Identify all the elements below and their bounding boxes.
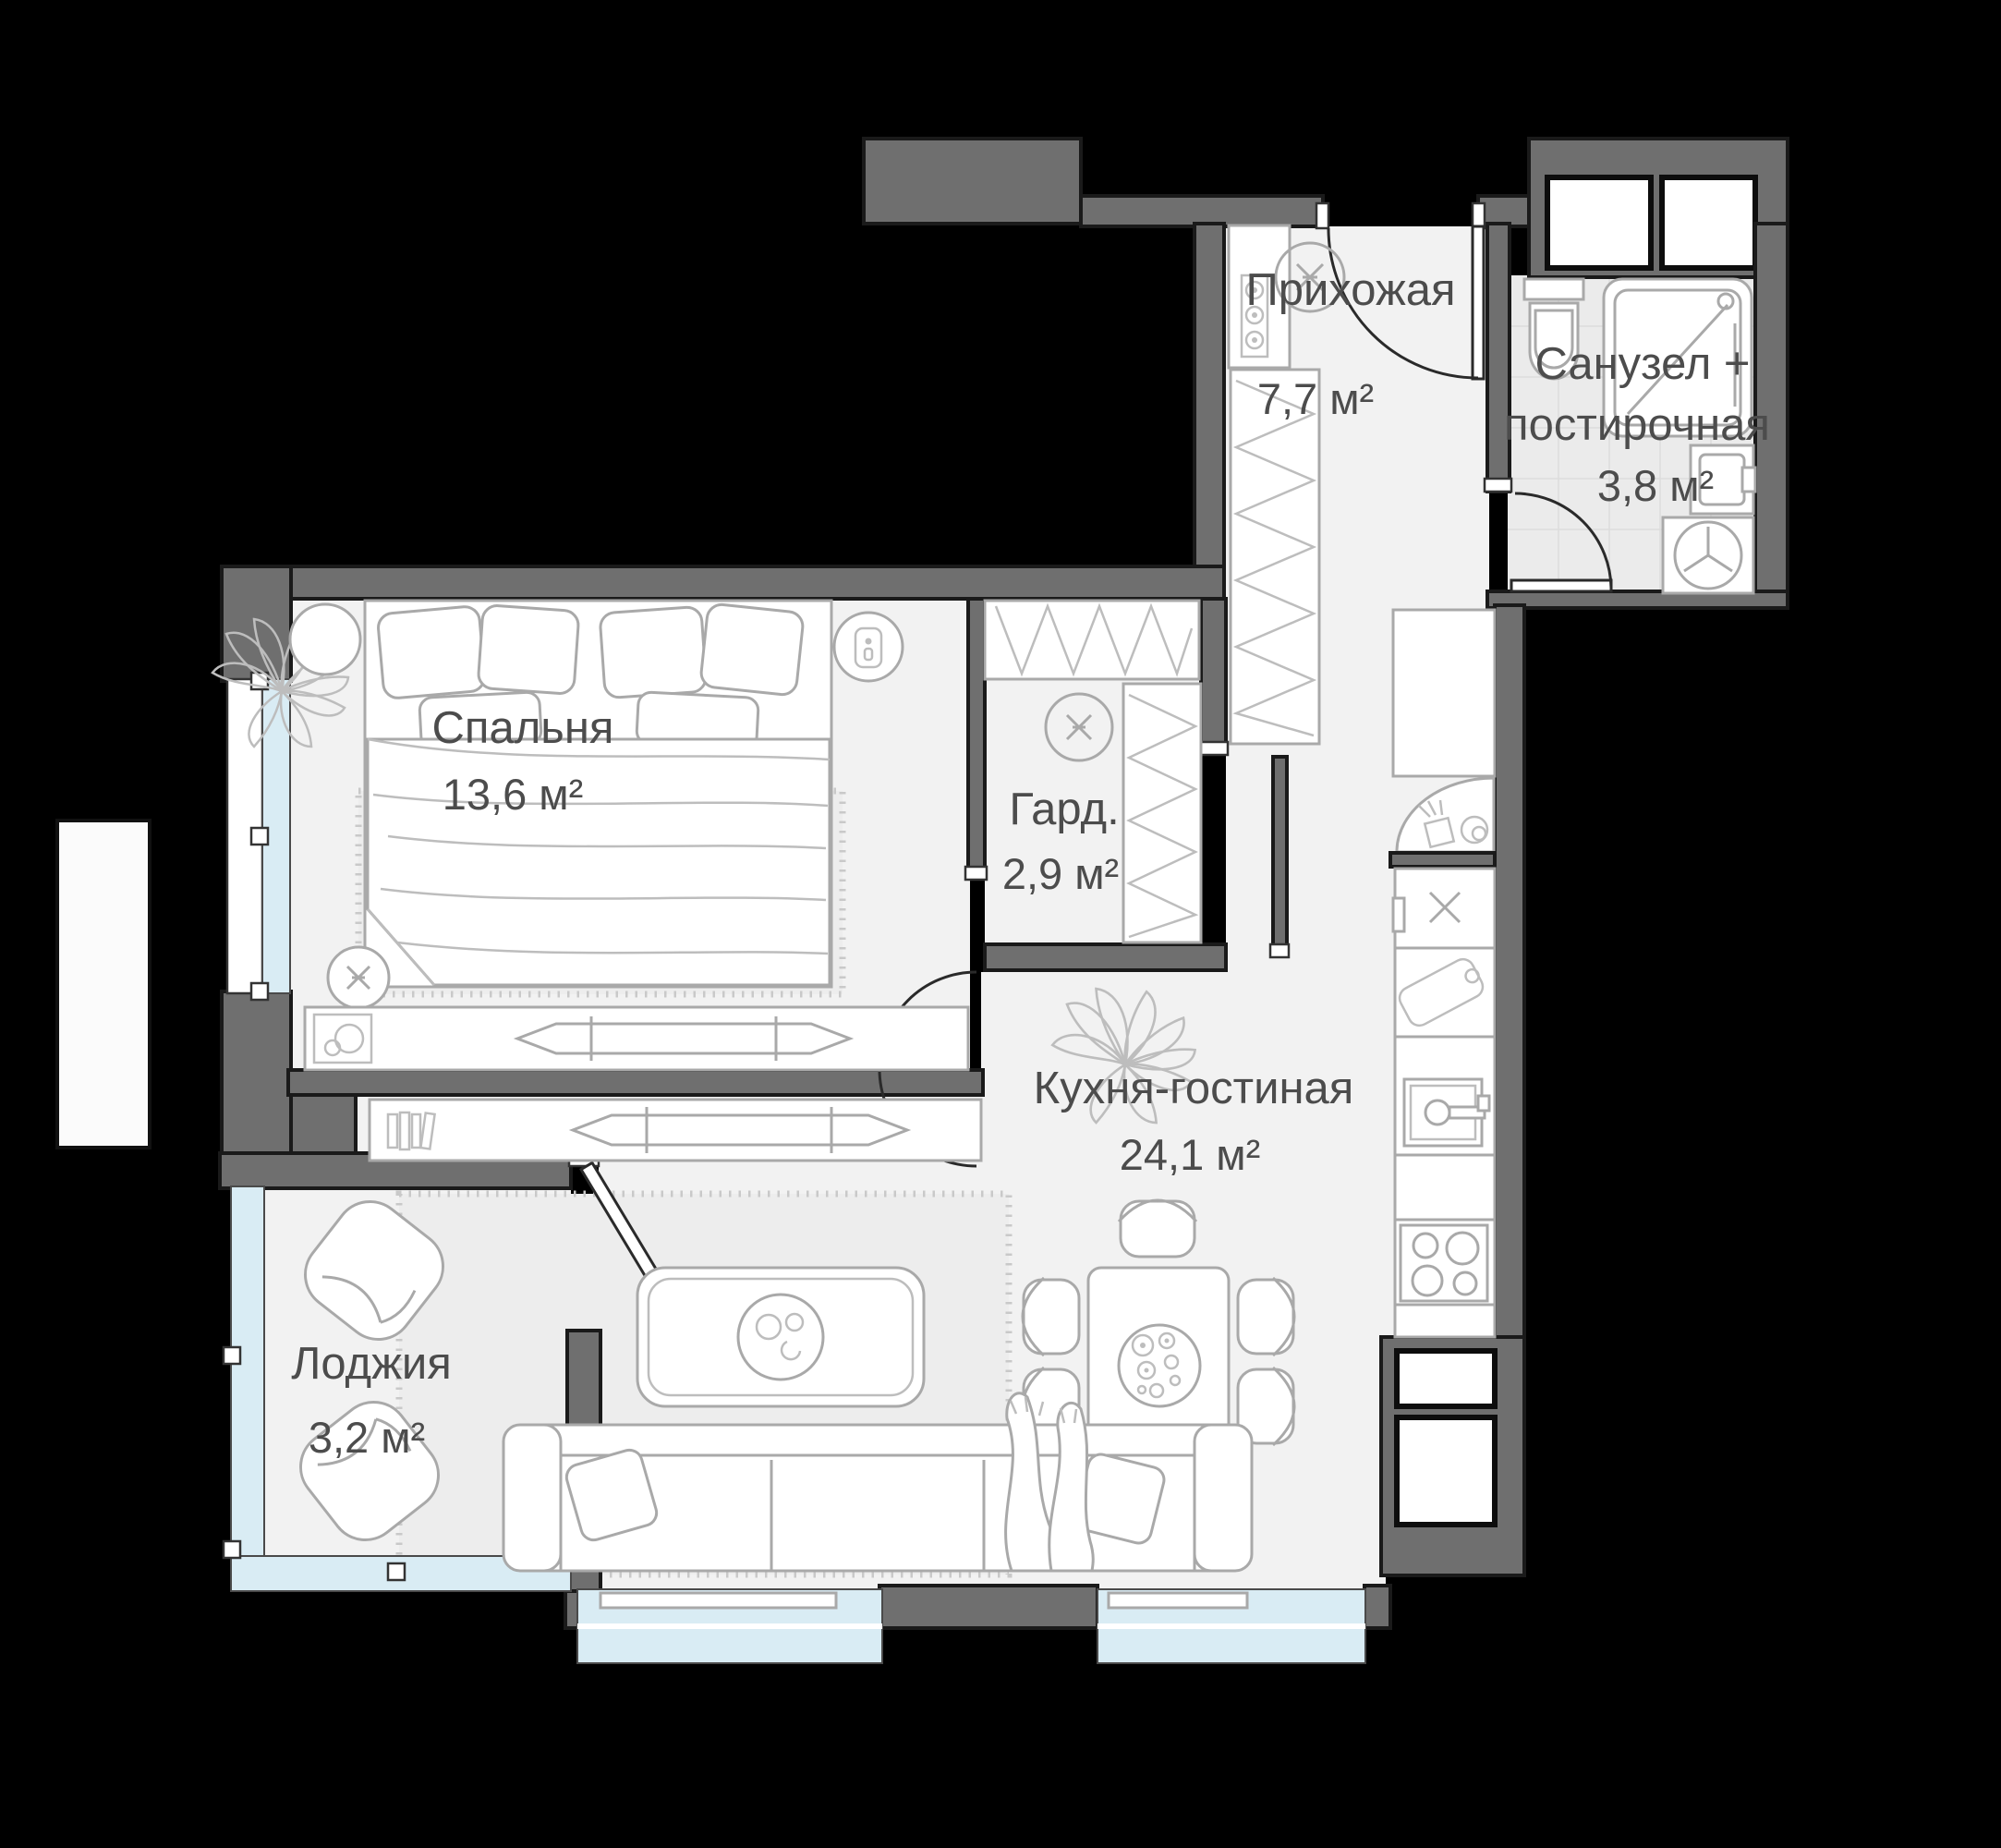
window-mullion [388, 1563, 405, 1580]
wardrobe-closet-top [985, 601, 1199, 679]
vent-shaft-1 [1547, 177, 1651, 268]
tv-icon [573, 1107, 907, 1153]
corridor-stub-wall [1273, 757, 1287, 946]
loggia-label: Лоджия [291, 1339, 452, 1389]
chair [1119, 1200, 1196, 1257]
vanity-stool [328, 947, 389, 1008]
loggia-glazing-left [231, 1186, 264, 1589]
hallway-wardrobe [1231, 370, 1319, 744]
exterior-slab [57, 821, 150, 1148]
stove-icon [1395, 1220, 1495, 1305]
coffee-table [637, 1268, 924, 1406]
counter [1395, 1305, 1495, 1337]
loggia-area: 3,2 м² [309, 1413, 425, 1462]
bedside-table [290, 604, 360, 675]
kitchen-sink-icon [1395, 1037, 1495, 1155]
pillow [600, 606, 707, 698]
bedroom-label: Спальня [432, 703, 614, 753]
window-mullion [251, 828, 268, 845]
bed [365, 601, 831, 987]
bedroom-door-jamb [965, 867, 987, 880]
window-mullion [251, 983, 268, 1000]
wardrobe-door-jamb [1198, 742, 1228, 755]
floor-plan: Прихожая 7,7 м² Санузел + постирочная 3,… [0, 0, 2001, 1848]
tall-cabinet [1393, 610, 1495, 776]
counter [1395, 1155, 1495, 1220]
dining-radiator [1109, 1593, 1247, 1608]
hallway-label: Прихожая [1245, 265, 1455, 315]
bathroom-door-leaf [1511, 580, 1611, 591]
kitchen-living-label: Кухня-гостиная [1034, 1064, 1354, 1113]
pillow [478, 604, 579, 694]
tv-icon [517, 1016, 850, 1061]
wardrobe-area: 2,9 м² [1002, 849, 1119, 898]
bedroom-dresser [305, 1007, 968, 1070]
pillow [377, 605, 486, 699]
washer-icon [1663, 517, 1753, 593]
entry-door-jamb-left [1316, 203, 1328, 228]
bathroom-label-line1: Санузел + [1534, 339, 1750, 389]
kitchen [1390, 610, 1495, 1337]
bedroom-area: 13,6 м² [443, 770, 584, 819]
bedside-table [834, 613, 903, 681]
corridor-left-wall [1195, 224, 1224, 570]
window-mullion [224, 1347, 240, 1364]
bathroom-label-line2: постирочная [1504, 400, 1770, 450]
wardrobe-right-wall [1201, 599, 1226, 744]
wardrobe-left-wall [968, 599, 985, 869]
vent-shaft-2 [1662, 177, 1755, 268]
living-radiator [600, 1593, 836, 1608]
window-mullion [224, 1541, 240, 1558]
bathroom-area: 3,8 м² [1597, 461, 1714, 510]
dishwasher-icon [1393, 869, 1495, 948]
blanket [368, 739, 830, 985]
pillow [700, 603, 805, 696]
bottom-wall-pier-middle [879, 1586, 1098, 1628]
vent-shaft-3 [1397, 1351, 1495, 1406]
entry-door-jamb-right [1473, 203, 1485, 228]
chair [1023, 1278, 1079, 1356]
kitchen-right-wall [1495, 605, 1524, 1340]
hallway-area: 7,7 м² [1257, 374, 1374, 423]
wardrobe-bottom-wall [985, 944, 1226, 970]
vent-shaft-4 [1397, 1417, 1495, 1525]
bedroom-left-wall-bottom [222, 991, 291, 1158]
entry-top-wall-block [864, 139, 1081, 224]
cutting-board-icon [1395, 948, 1495, 1037]
floor-plan-canvas: Прихожая 7,7 м² Санузел + постирочная 3,… [0, 0, 2001, 1848]
bottom-wall-pier-right [1364, 1586, 1390, 1628]
bedroom-top-wall [226, 566, 1224, 599]
bathroom-left-wall [1487, 224, 1510, 492]
entrance-door-leaf [1473, 226, 1484, 379]
bathroom-door-jamb [1485, 479, 1511, 492]
kitchen-living-area: 24,1 м² [1120, 1130, 1261, 1179]
chair [1238, 1278, 1294, 1356]
wardrobe-label: Гард. [1009, 784, 1119, 834]
corridor-stub-jamb [1270, 944, 1289, 957]
